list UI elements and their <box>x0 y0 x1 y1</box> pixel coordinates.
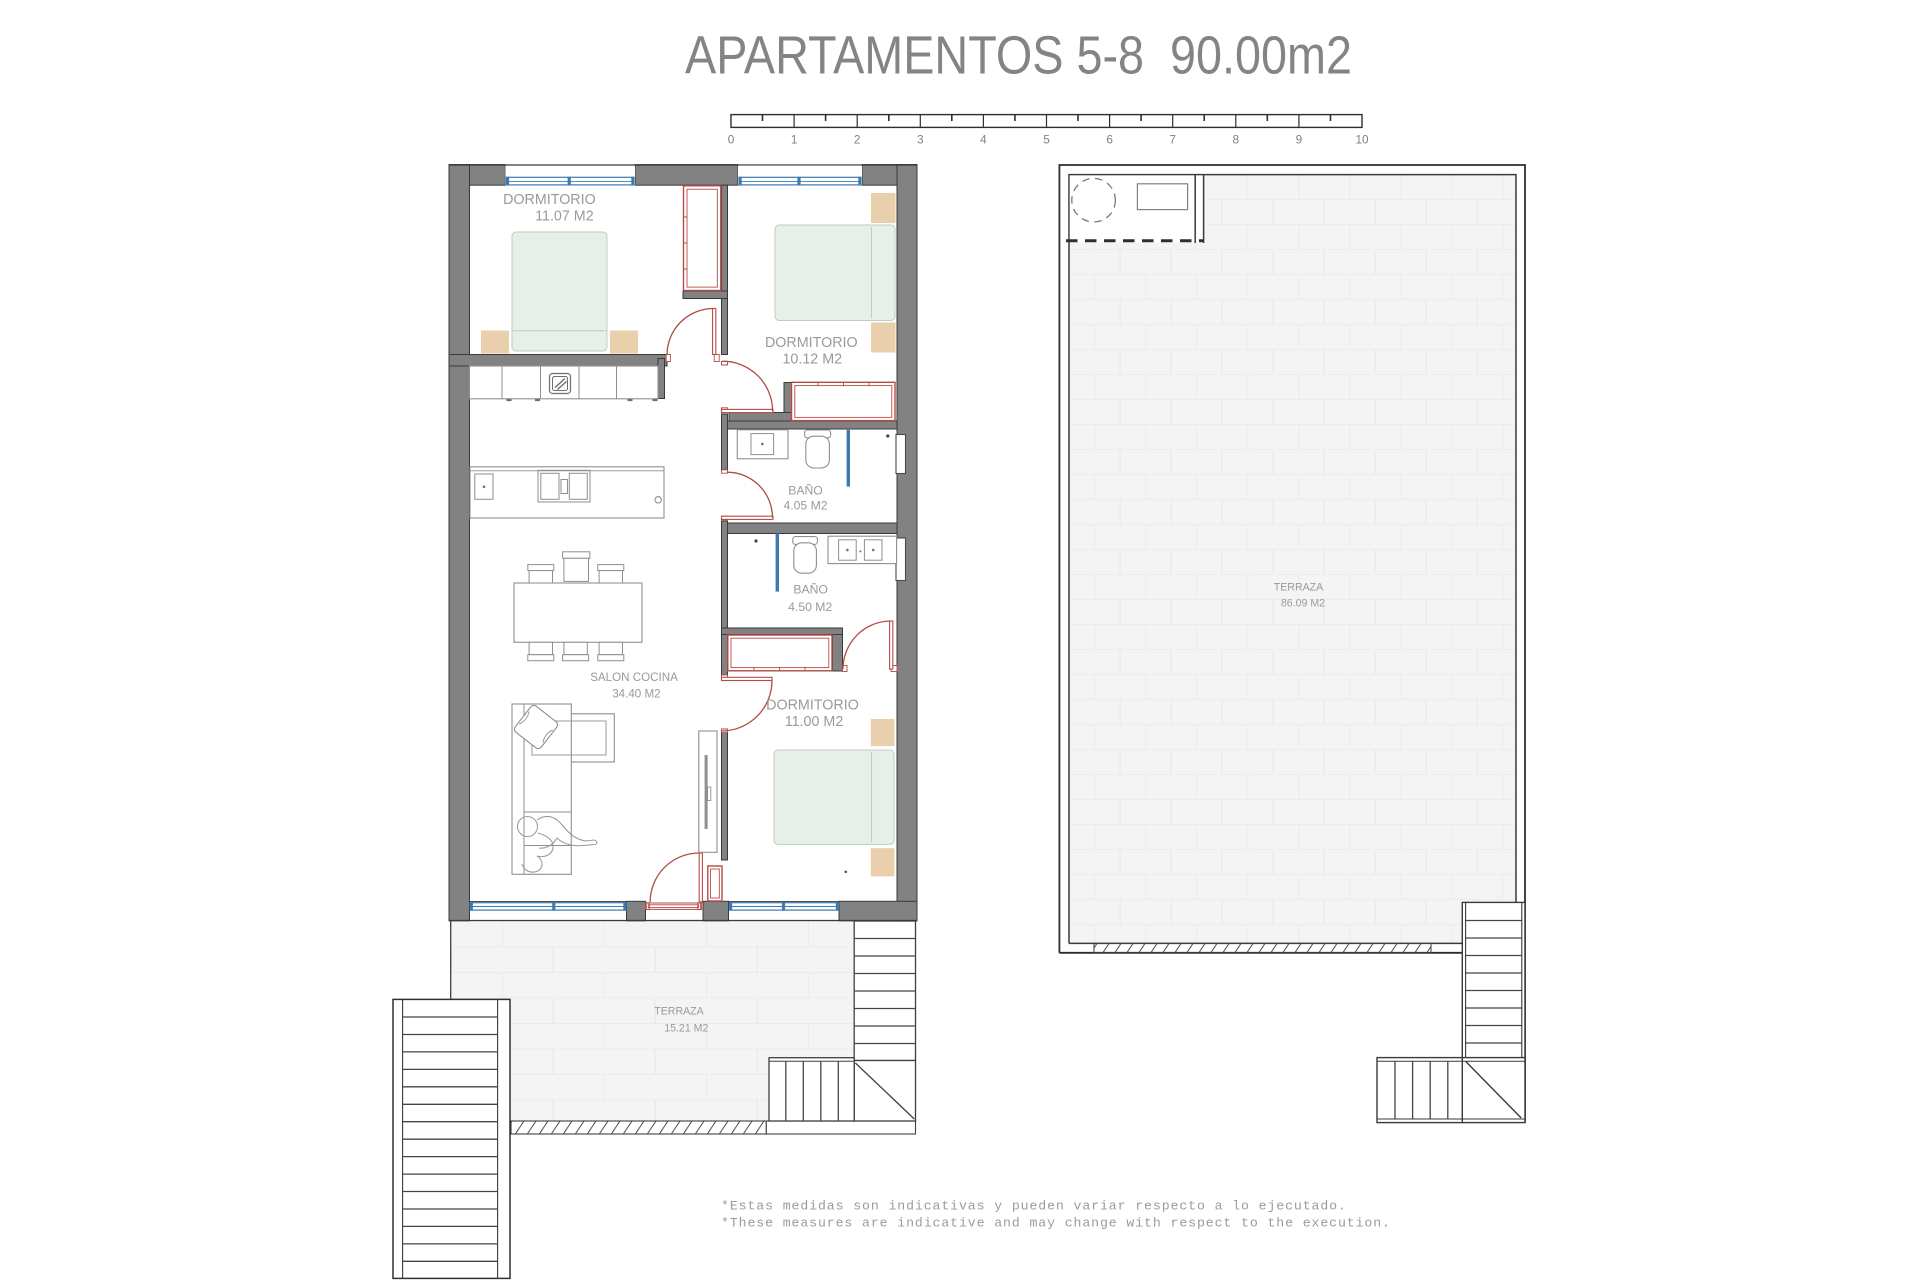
svg-text:6: 6 <box>1106 133 1113 147</box>
svg-text:11.00 M2: 11.00 M2 <box>785 714 844 730</box>
svg-text:DORMITORIO: DORMITORIO <box>503 192 596 208</box>
svg-text:0: 0 <box>728 133 735 147</box>
svg-text:7: 7 <box>1169 133 1176 147</box>
svg-text:DORMITORIO: DORMITORIO <box>766 698 859 714</box>
svg-text:4.50 M2: 4.50 M2 <box>788 600 832 614</box>
svg-text:SALON COCINA: SALON COCINA <box>590 671 678 684</box>
svg-text:4: 4 <box>980 133 987 147</box>
svg-text:TERRAZA: TERRAZA <box>1274 582 1324 594</box>
svg-text:9: 9 <box>1296 133 1303 147</box>
svg-text:4.05 M2: 4.05 M2 <box>783 499 827 513</box>
svg-text:TERRAZA: TERRAZA <box>654 1005 704 1017</box>
svg-text:BAÑO: BAÑO <box>788 484 823 498</box>
svg-text:BAÑO: BAÑO <box>793 582 828 596</box>
svg-text:10.12 M2: 10.12 M2 <box>782 351 842 367</box>
svg-text:86.09 M2: 86.09 M2 <box>1281 597 1325 609</box>
svg-text:APARTAMENTOS 5-8 90.00m2: APARTAMENTOS 5-8 90.00m2 <box>685 26 1352 86</box>
svg-text:15.21 M2: 15.21 M2 <box>664 1023 708 1035</box>
svg-text:DORMITORIO: DORMITORIO <box>765 335 858 351</box>
svg-text:11.07 M2: 11.07 M2 <box>535 209 594 225</box>
svg-text:5: 5 <box>1043 133 1050 147</box>
svg-text:8: 8 <box>1233 133 1240 147</box>
svg-text:2: 2 <box>854 133 861 147</box>
svg-text:34.40 M2: 34.40 M2 <box>612 687 660 700</box>
svg-text:*Estas medidas son indicativas: *Estas medidas son indicativas y pueden … <box>721 1199 1347 1214</box>
svg-text:3: 3 <box>917 133 924 147</box>
svg-text:*These measures are indicative: *These measures are indicative and may c… <box>721 1216 1391 1231</box>
svg-text:1: 1 <box>791 133 798 147</box>
svg-text:10: 10 <box>1355 133 1369 147</box>
